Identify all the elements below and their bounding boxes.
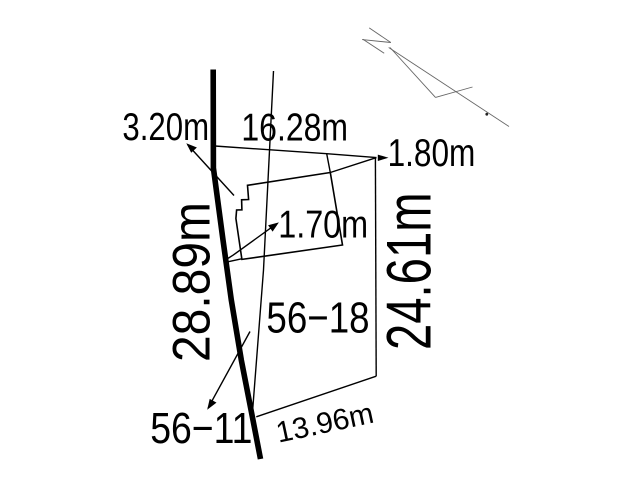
svg-text:1.70m: 1.70m — [278, 203, 368, 247]
svg-text:56−18: 56−18 — [266, 292, 369, 342]
svg-text:56−11: 56−11 — [150, 403, 252, 453]
svg-text:24.61m: 24.61m — [374, 192, 444, 350]
svg-text:3.20m: 3.20m — [122, 106, 209, 149]
svg-text:16.28m: 16.28m — [241, 105, 348, 149]
svg-text:1.80m: 1.80m — [388, 131, 476, 175]
svg-text:28.89m: 28.89m — [161, 202, 221, 362]
